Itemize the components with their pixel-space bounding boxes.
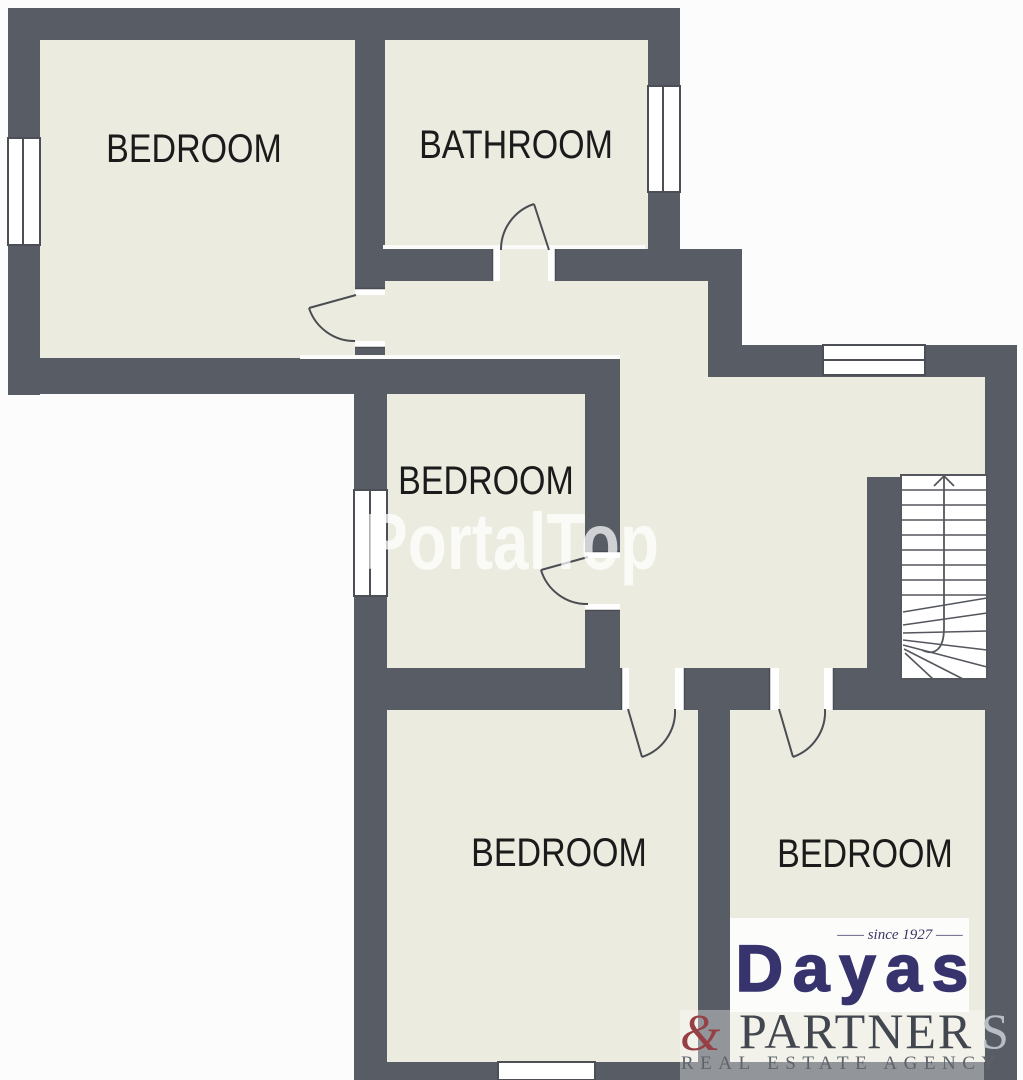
svg-text:BEDROOM: BEDROOM — [471, 829, 647, 874]
svg-text:S: S — [981, 1003, 1009, 1059]
svg-text:REAL ESTATE AGENCY: REAL ESTATE AGENCY — [681, 1053, 1002, 1074]
svg-text:PortalTop: PortalTop — [365, 497, 659, 586]
svg-text:BEDROOM: BEDROOM — [106, 125, 282, 170]
svg-text:Dayas: Dayas — [736, 931, 979, 1005]
svg-text:BEDROOM: BEDROOM — [777, 830, 953, 875]
svg-text:BEDROOM: BEDROOM — [398, 457, 574, 502]
svg-text:BATHROOM: BATHROOM — [419, 121, 613, 166]
svg-text:PARTNER: PARTNER — [739, 1003, 973, 1059]
